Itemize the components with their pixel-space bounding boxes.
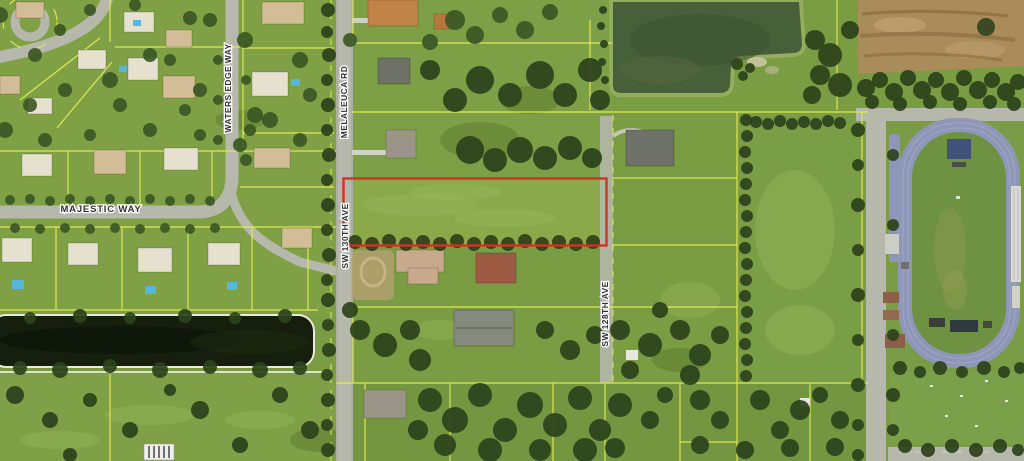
shed xyxy=(901,262,909,269)
house xyxy=(163,76,195,98)
road-right-vertical xyxy=(866,118,886,461)
striped-building xyxy=(144,444,174,460)
dirt-field xyxy=(858,0,1024,74)
house xyxy=(16,2,44,18)
house xyxy=(166,30,192,47)
house xyxy=(164,148,198,170)
shed xyxy=(626,350,638,360)
house xyxy=(208,243,240,265)
pool xyxy=(12,280,24,289)
pool xyxy=(145,286,156,294)
house xyxy=(476,253,516,283)
pool xyxy=(227,282,237,290)
street-label-sw-130th-ave: SW 130TH AVE xyxy=(340,203,350,268)
street-label-majestic-way: MAJESTIC WAY xyxy=(60,204,141,215)
building xyxy=(883,310,899,320)
canopy xyxy=(947,139,971,159)
street-label-melaleuca-rd: MELALEUCA RD xyxy=(339,66,349,138)
aerial-parcel-map: WATERS EDGE WAY MAJESTIC WAY MELALEUCA R… xyxy=(0,0,1024,461)
bleachers xyxy=(1012,286,1020,308)
house xyxy=(22,154,52,176)
house xyxy=(626,130,674,166)
house xyxy=(378,58,410,84)
field-structure xyxy=(929,318,945,327)
building xyxy=(883,292,899,303)
bleachers xyxy=(1011,186,1021,282)
house xyxy=(0,76,20,94)
house xyxy=(2,238,32,262)
house xyxy=(386,130,416,158)
street-label-waters-edge-way: WATERS EDGE WAY xyxy=(223,43,233,132)
driveway xyxy=(352,150,386,155)
sports-track-complex xyxy=(883,118,1024,444)
practice-field xyxy=(890,372,1024,444)
pool xyxy=(291,79,300,86)
field-structure xyxy=(983,321,992,328)
house xyxy=(138,248,172,272)
house xyxy=(254,148,290,168)
canal xyxy=(0,315,314,367)
house xyxy=(94,150,126,174)
house xyxy=(68,243,98,265)
building xyxy=(885,234,899,254)
house xyxy=(78,50,106,69)
pool xyxy=(133,20,141,26)
house xyxy=(364,390,406,418)
field-structure xyxy=(950,320,978,332)
house xyxy=(282,228,312,248)
house xyxy=(262,2,304,24)
pool xyxy=(119,66,127,72)
street-label-sw-128th-ave: SW 128TH AVE xyxy=(600,281,610,346)
palm-tree xyxy=(977,18,995,36)
house xyxy=(368,0,418,26)
house xyxy=(252,72,288,96)
house xyxy=(128,58,158,80)
house xyxy=(408,268,438,284)
